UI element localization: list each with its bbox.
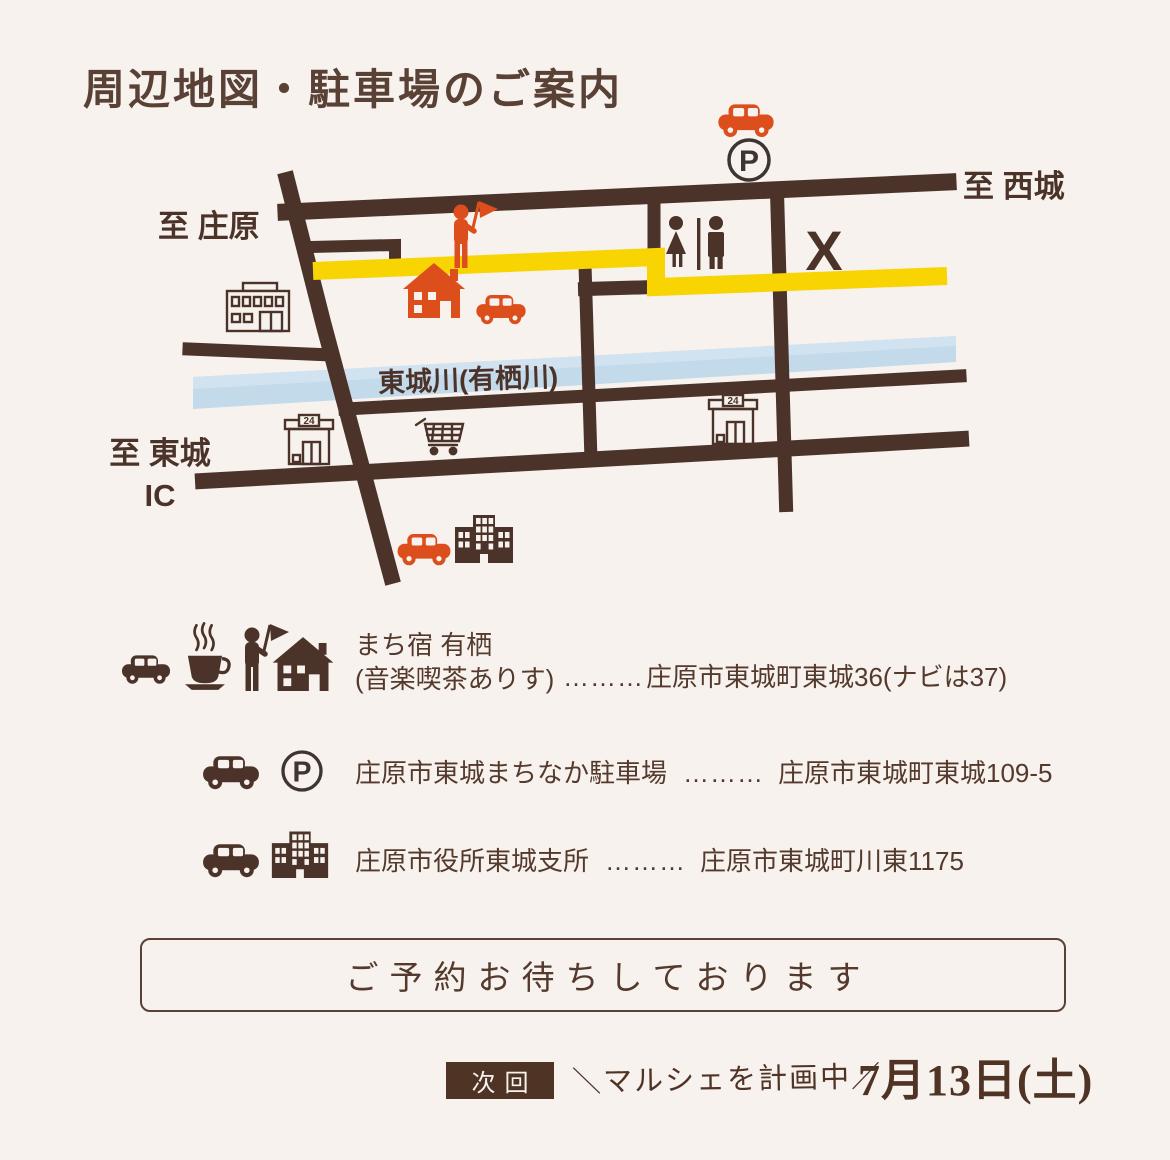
legend-row-1-dots: ……… (563, 660, 644, 694)
event-date: 7月13日(土) (858, 1044, 1093, 1108)
road-left-short (189, 349, 331, 355)
parking-icon (729, 140, 769, 180)
legend-row-3-address-text: 庄原市東城町川東1175 (700, 844, 964, 878)
road-vertical-long (777, 192, 786, 505)
road-stub (585, 287, 655, 289)
legend-row-3: 庄原市役所東城支所 ……… 庄原市東城町川東1175 (355, 844, 964, 878)
legend-coffee-icon (185, 623, 229, 690)
marche-announcement: ＼マルシェを計画中／ (572, 1053, 883, 1100)
legend-row-1-name: まち宿 有栖 (音楽喫茶ありす) (355, 628, 554, 696)
closed-road-x-mark: X (805, 219, 842, 282)
convenience-store-icon-left (285, 415, 333, 464)
legend-row-2: 庄原市東城まちなか駐車場 ……… 庄原市東城町東城109-5 (355, 756, 1053, 790)
shopping-cart-icon (416, 419, 463, 454)
legend-parking-icon (283, 752, 321, 790)
legend-city-hall-icon (272, 831, 328, 878)
legend-car-icon-2 (203, 756, 259, 789)
city-hall-icon (455, 515, 513, 563)
legend-row-2-address-text: 庄原市東城町東城109-5 (778, 756, 1053, 790)
legend-row-3-name: 庄原市役所東城支所 (355, 844, 589, 878)
page-title: 周辺地図・駐車場のご案内 (83, 56, 623, 117)
legend-row-3-dots: ……… (605, 844, 686, 878)
legend-house-icon (273, 637, 334, 691)
next-event-badge: 次回 (446, 1062, 554, 1099)
car-icon-parking (718, 104, 773, 137)
legend-row-1-address-text: 庄原市東城町東城36(ナビは37) (646, 660, 1007, 694)
car-icon-venue (476, 295, 525, 324)
legend-row-1-name-line2: (音楽喫茶ありす) (355, 662, 554, 696)
legend-car-icon-1 (122, 655, 170, 683)
map-label-to-shobara: 至 庄原 (158, 201, 260, 246)
map-label-to-saijo: 至 西城 (963, 161, 1065, 206)
legend-car-icon-3 (203, 844, 259, 877)
river-name-label: 東城川(有栖川) (377, 355, 558, 400)
reservation-box: ご予約お待ちしております (140, 938, 1066, 1012)
legend-row-2-name: 庄原市東城まちなか駐車場 (355, 756, 667, 790)
legend-row-1-name-line1: まち宿 有栖 (355, 628, 554, 662)
flyer-page: P (0, 0, 1170, 1160)
legend-row-2-dots: ……… (683, 756, 764, 790)
reservation-text: ご予約お待ちしております (334, 951, 871, 999)
road-main-east-west (286, 182, 948, 212)
convenience-store-icon-right (709, 395, 757, 444)
hospital-building-icon (227, 283, 289, 331)
map-label-to-tojo-ic: 至 東城 IC (100, 433, 220, 517)
legend-row-1-address: ……… 庄原市東城町東城36(ナビは37) (563, 660, 1007, 694)
road-bottom-tojo-ic (203, 439, 961, 481)
toilet-icon (666, 216, 724, 270)
car-icon-cityhall (398, 534, 451, 565)
